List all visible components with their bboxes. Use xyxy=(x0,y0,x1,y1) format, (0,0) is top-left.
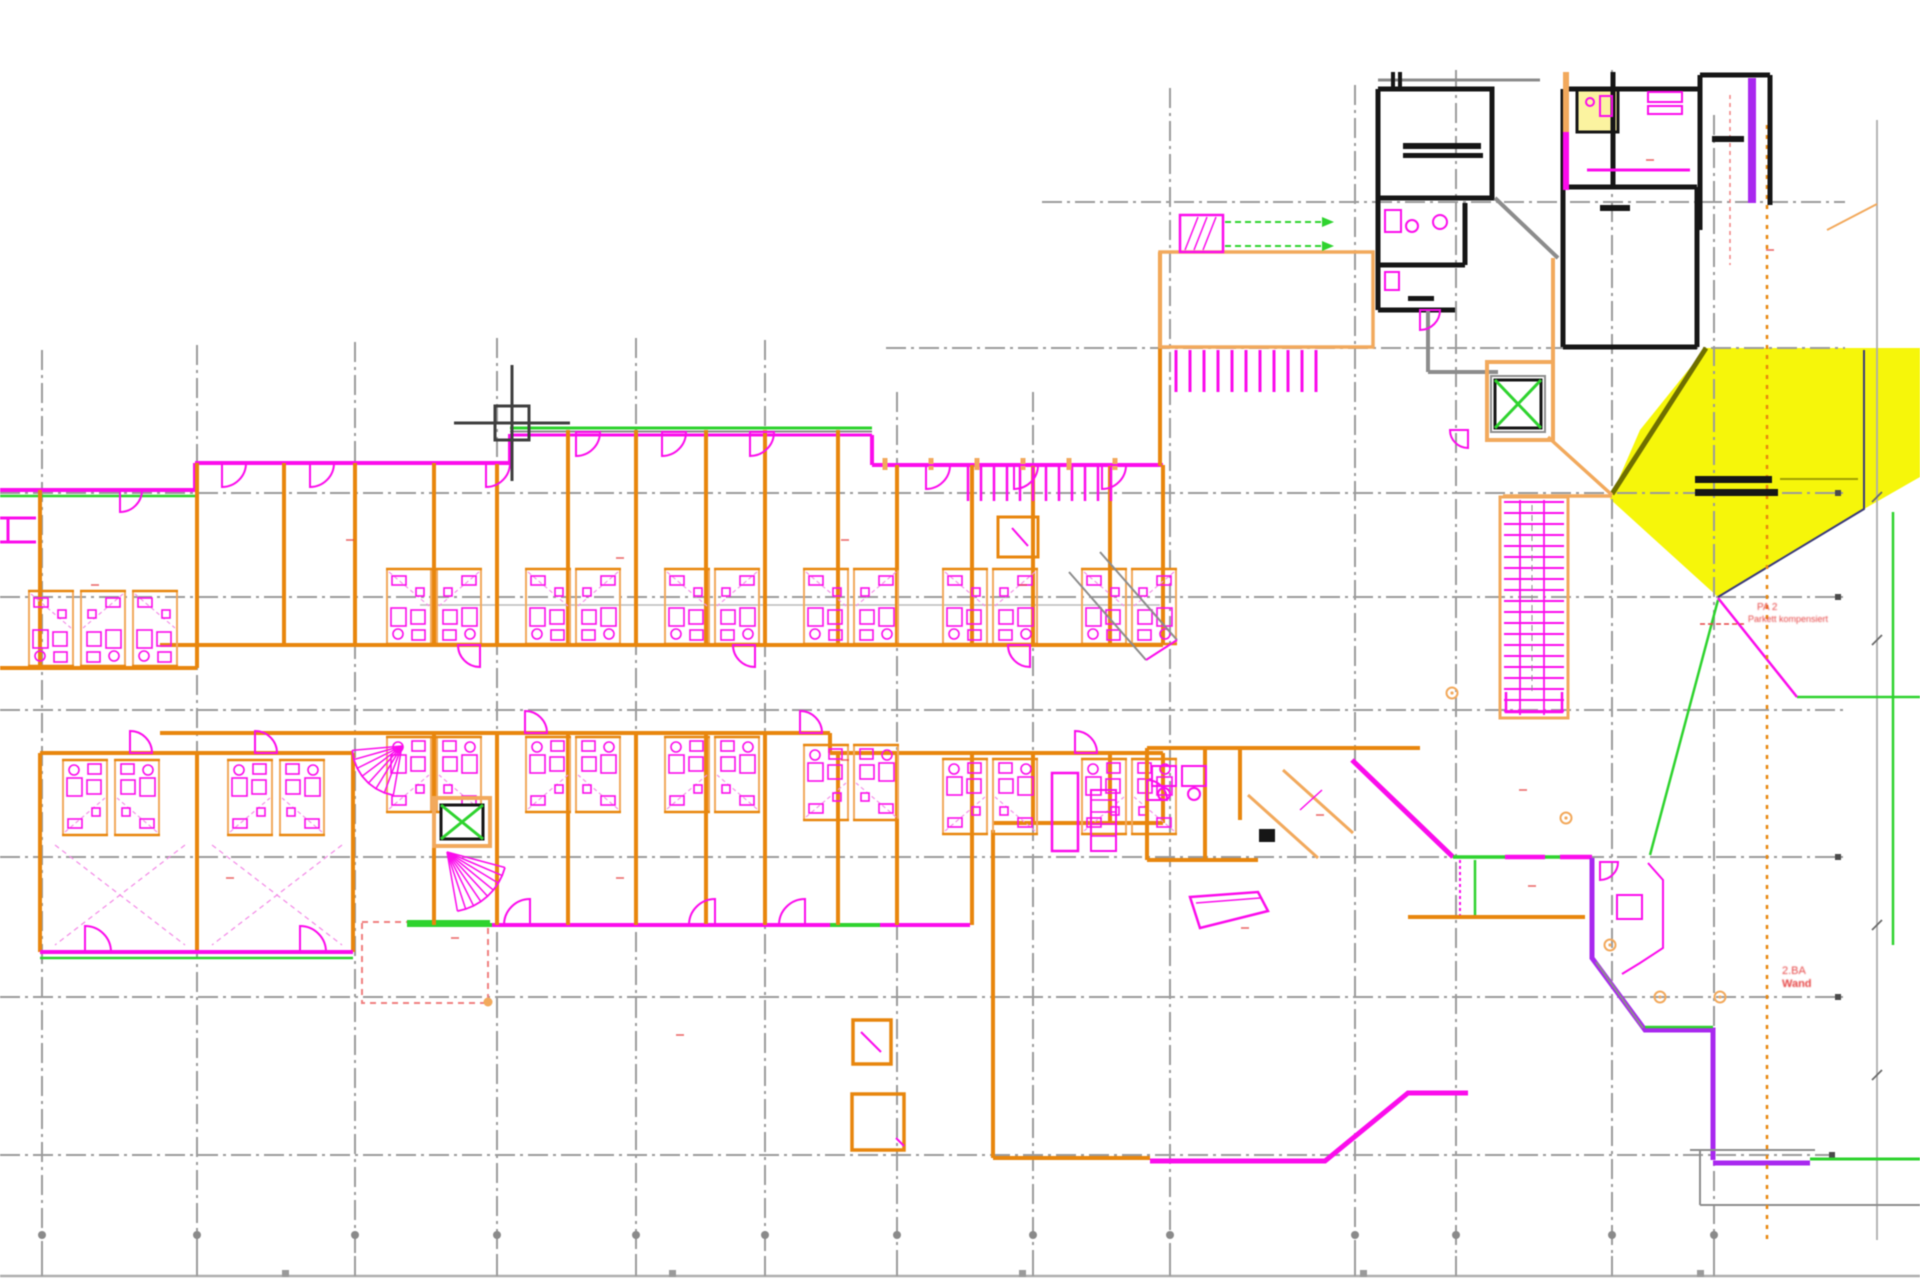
reception-desk xyxy=(1190,892,1268,928)
core-black xyxy=(1378,72,1770,378)
escalator-room xyxy=(1160,252,1373,347)
red-dashed-room xyxy=(362,920,493,1007)
main-stair xyxy=(1500,497,1568,718)
hall-south-wall xyxy=(993,1093,1468,1161)
note-lower-right-line2: Wand xyxy=(1782,978,1812,990)
central-hall xyxy=(885,215,1373,660)
annotations: PA 2 Parkett kompensiert 2.BA Wand xyxy=(1700,602,1829,990)
room-partitions xyxy=(197,430,1163,925)
corridor-south-wall xyxy=(160,733,1163,753)
bay-structure xyxy=(1352,600,1920,1163)
shelf-ladder xyxy=(1091,790,1116,851)
survey-point-markers xyxy=(1447,688,1726,1003)
purple-wall-bar xyxy=(1748,78,1756,203)
note-upper-right-line1: PA 2 xyxy=(1757,602,1778,613)
main-elevator xyxy=(1487,362,1612,496)
left-edge-stub-walls xyxy=(0,518,36,542)
hall-west-wall xyxy=(993,823,1163,1158)
note-upper-right-line2: Parkett kompensiert xyxy=(1748,614,1829,624)
counter-studs xyxy=(885,350,1316,501)
escalator xyxy=(1180,215,1334,252)
black-fixture xyxy=(1259,829,1275,842)
core-fixtures xyxy=(1385,92,1682,290)
floorplan-canvas[interactable]: PA 2 Parkett kompensiert 2.BA Wand xyxy=(0,0,1920,1280)
door-swing-arcs xyxy=(85,310,1618,952)
right-boundary xyxy=(1612,95,1920,1240)
tall-cabinet xyxy=(1052,773,1078,851)
green-band xyxy=(407,920,490,927)
left-wing xyxy=(0,428,1177,1158)
wing-elevator xyxy=(434,798,490,846)
arrow-icons xyxy=(1322,217,1334,251)
note-lower-right-line1: 2.BA xyxy=(1782,965,1807,977)
cad-viewport[interactable]: PA 2 Parkett kompensiert 2.BA Wand xyxy=(0,0,1920,1280)
bathroom-pods xyxy=(28,568,1177,836)
grid-layer xyxy=(0,70,1920,1277)
